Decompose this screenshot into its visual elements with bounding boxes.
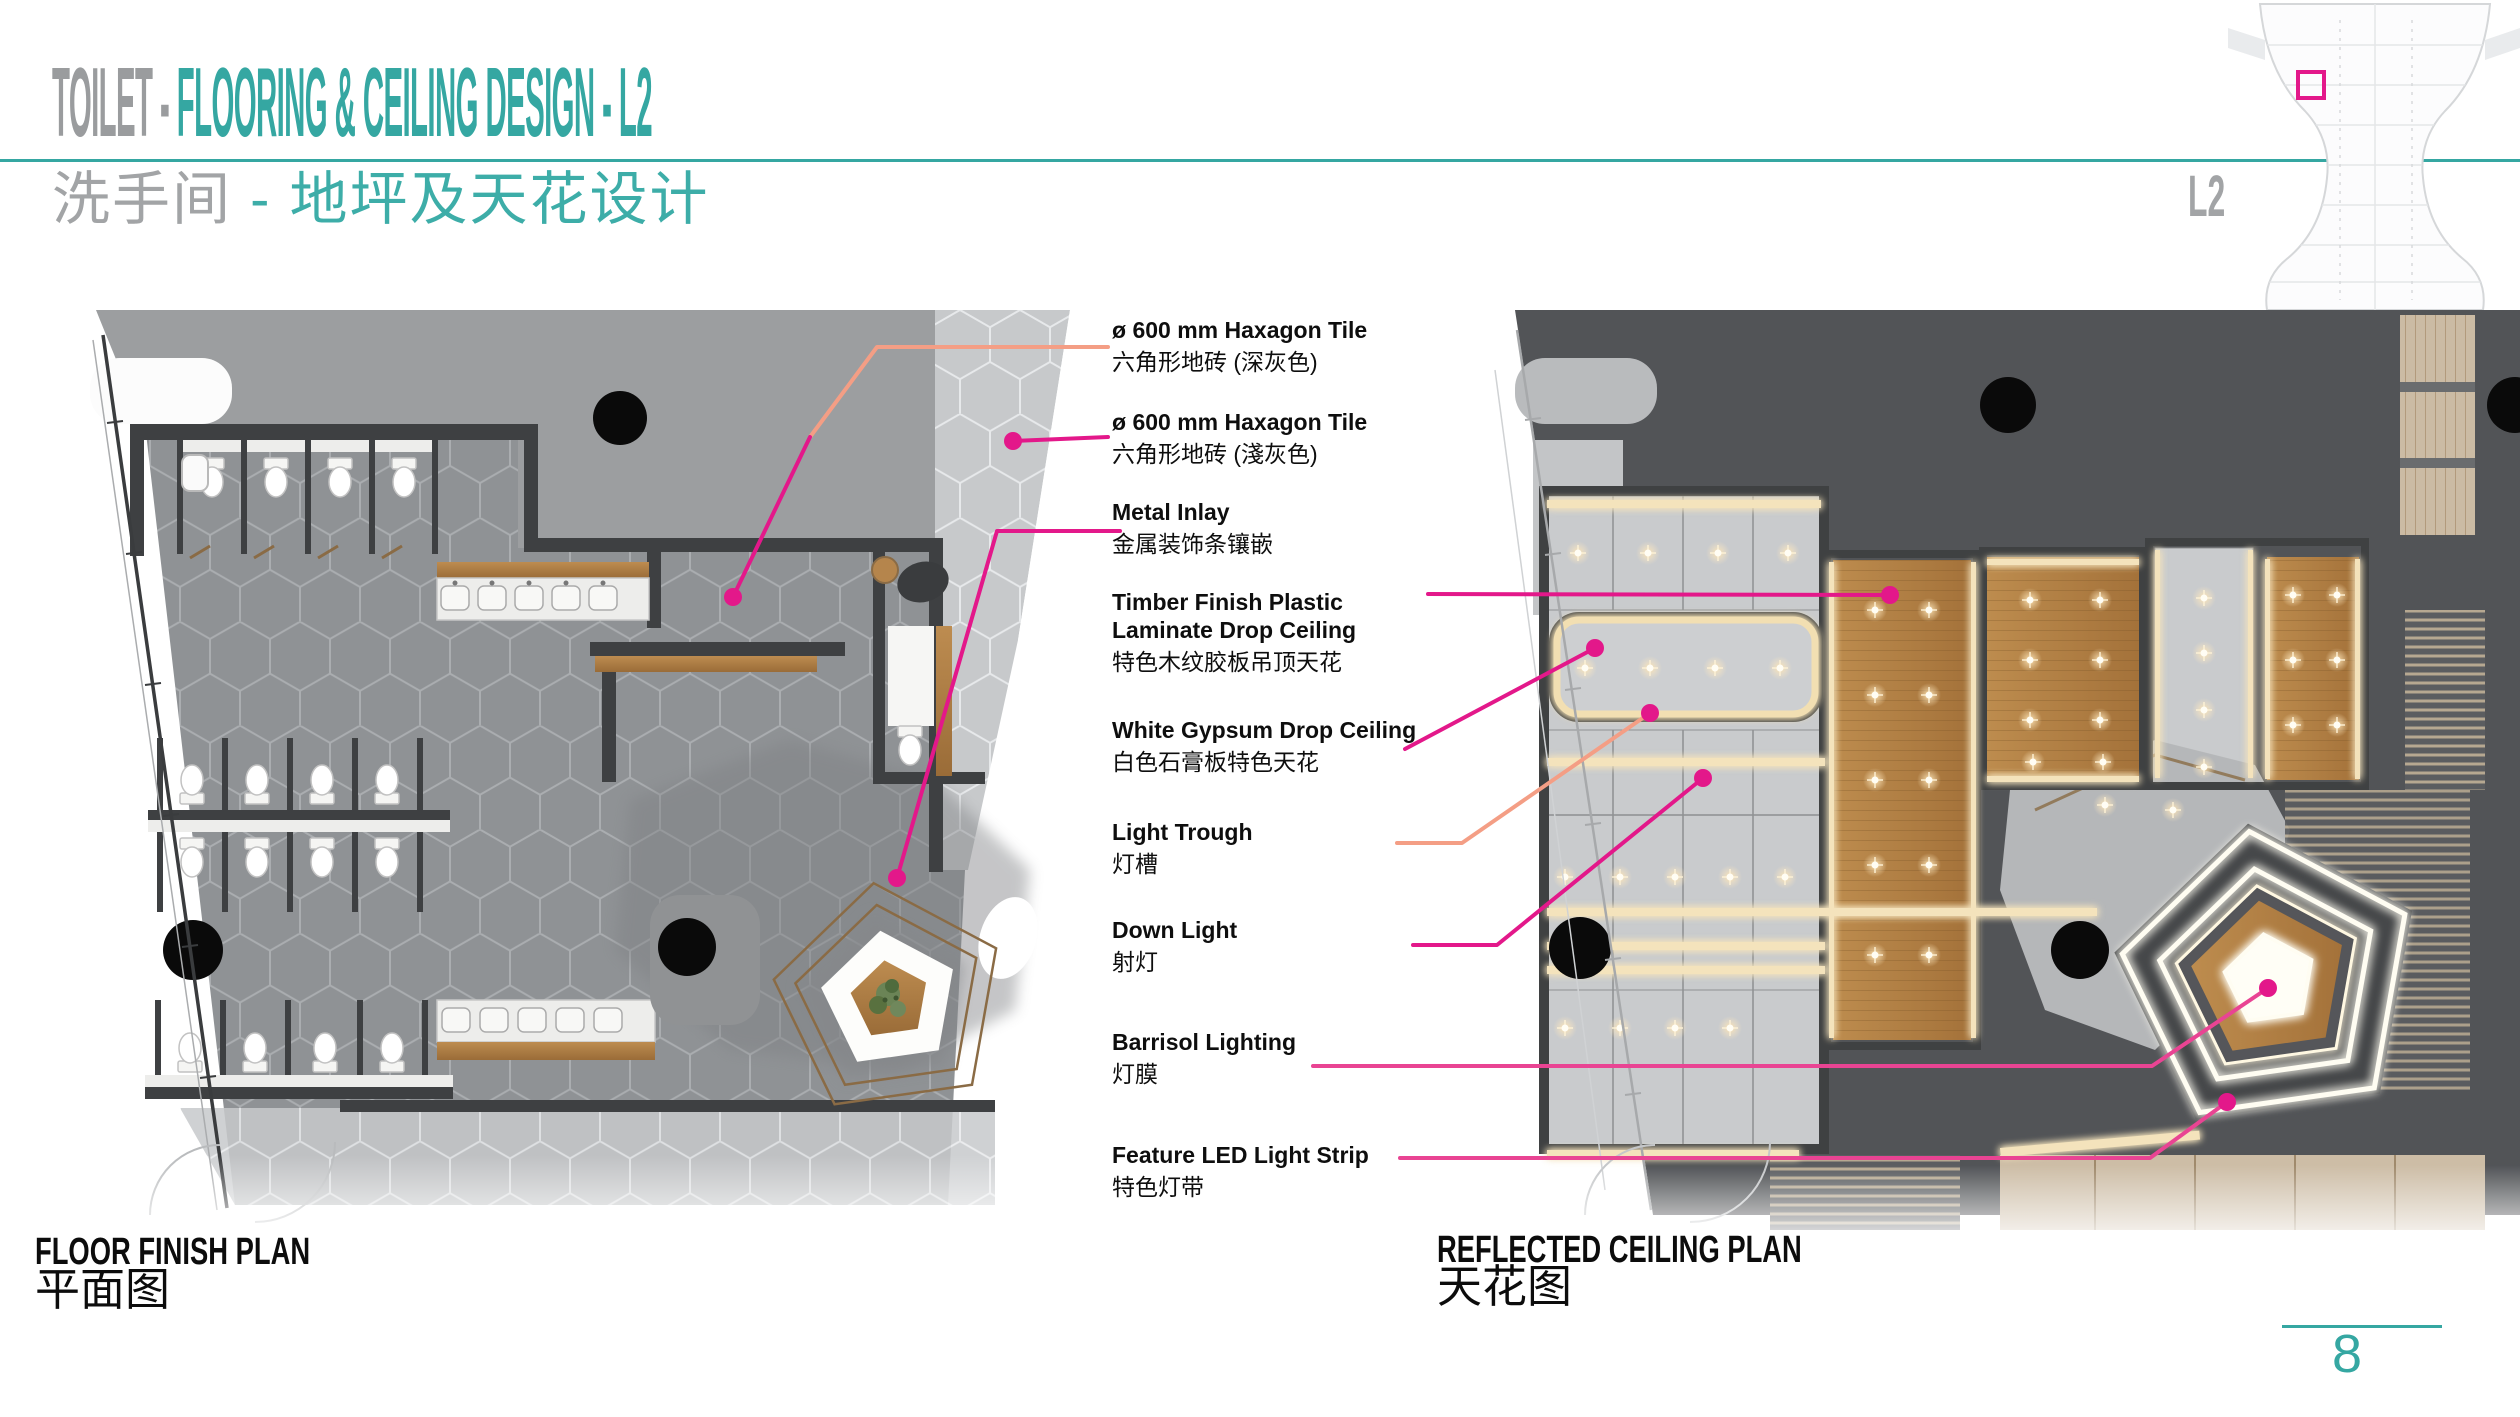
annotation-en: Feature LED Light Strip	[1112, 1141, 1417, 1169]
keyplan-wing-right	[2485, 28, 2520, 60]
ceiling-plan-subtitle: 天花图	[1437, 1263, 1572, 1311]
annotation-en: ø 600 mm Haxagon Tile	[1112, 408, 1417, 436]
annotation-hexagon-light: ø 600 mm Haxagon Tile 六角形地砖 (淺灰色)	[1112, 408, 1417, 469]
annotation-led-strip: Feature LED Light Strip 特色灯带	[1112, 1141, 1417, 1202]
page-title-gray: TOILET -	[52, 47, 177, 157]
annotation-zh: 射灯	[1112, 947, 1417, 977]
annotation-en: Light Trough	[1112, 818, 1417, 846]
keyplan-wing-left	[2228, 28, 2265, 60]
annotation-zh: 六角形地砖 (深灰色)	[1112, 347, 1417, 377]
annotation-zh: 金属装饰条镶嵌	[1112, 529, 1417, 559]
annotation-zh: 特色木纹胶板吊顶天花	[1112, 647, 1417, 677]
page-number: 8	[2332, 1326, 2362, 1382]
annotation-en: White Gypsum Drop Ceiling	[1112, 716, 1417, 744]
annotation-zh: 白色石膏板特色天花	[1112, 747, 1417, 777]
ceiling-rounded-feature	[1515, 358, 1657, 424]
annotation-zh: 六角形地砖 (淺灰色)	[1112, 439, 1417, 469]
page-subtitle: 洗手间 - 地坪及天花设计	[52, 168, 710, 232]
annotation-en: Timber Finish Plastic	[1112, 588, 1417, 616]
page-title-teal: FLOORING & CEILING DESIGN - L2	[177, 47, 652, 157]
annotation-zh: 灯槽	[1112, 849, 1417, 879]
annotation-zh: 灯膜	[1112, 1059, 1417, 1089]
annotation-hexagon-dark: ø 600 mm Haxagon Tile 六角形地砖 (深灰色)	[1112, 316, 1417, 377]
hand-dryer	[182, 455, 208, 491]
reflected-ceiling-plan-drawing	[1455, 310, 2520, 1235]
timber-counter	[595, 656, 817, 672]
floor-finish-plan-drawing	[30, 310, 1105, 1235]
floor-plan-subtitle: 平面图	[35, 1266, 170, 1314]
page-title: TOILET - FLOORING & CEILING DESIGN - L2	[52, 52, 652, 152]
page-subtitle-gray: 洗手间	[52, 167, 250, 232]
page-subtitle-teal: - 地坪及天花设计	[250, 167, 709, 232]
annotation-en: Metal Inlay	[1112, 498, 1417, 526]
sink-counter-bottom	[437, 1000, 655, 1060]
annotation-en: Barrisol Lighting	[1112, 1028, 1417, 1056]
annotation-down-light: Down Light 射灯	[1112, 916, 1417, 977]
annotation-white-gypsum: White Gypsum Drop Ceiling 白色石膏板特色天花	[1112, 716, 1417, 777]
slide-canvas: TOILET - FLOORING & CEILING DESIGN - L2 …	[0, 0, 2520, 1417]
keyplan-level-label: L2	[2188, 168, 2225, 226]
annotation-metal-inlay: Metal Inlay 金属装饰条镶嵌	[1112, 498, 1417, 559]
annotation-en: Down Light	[1112, 916, 1417, 944]
annotation-en: ø 600 mm Haxagon Tile	[1112, 316, 1417, 344]
title-separator-line	[0, 159, 2520, 162]
annotation-timber-ceiling: Timber Finish Plastic Laminate Drop Ceil…	[1112, 588, 1417, 677]
annotation-en-line2: Laminate Drop Ceiling	[1112, 616, 1417, 644]
annotation-light-trough: Light Trough 灯槽	[1112, 818, 1417, 879]
annotation-barrisol: Barrisol Lighting 灯膜	[1112, 1028, 1417, 1089]
sink-counter-top	[437, 562, 649, 620]
keyplan-locator	[2190, 0, 2520, 312]
annotation-zh: 特色灯带	[1112, 1172, 1417, 1202]
